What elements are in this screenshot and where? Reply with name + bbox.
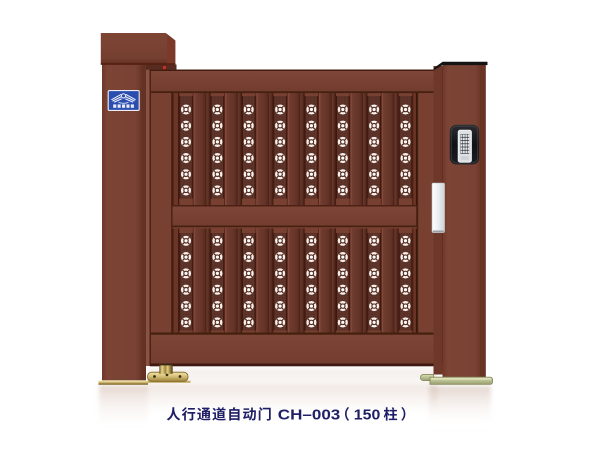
svg-text:CH–003: CH–003 bbox=[278, 406, 341, 423]
svg-text:150: 150 bbox=[354, 406, 381, 423]
